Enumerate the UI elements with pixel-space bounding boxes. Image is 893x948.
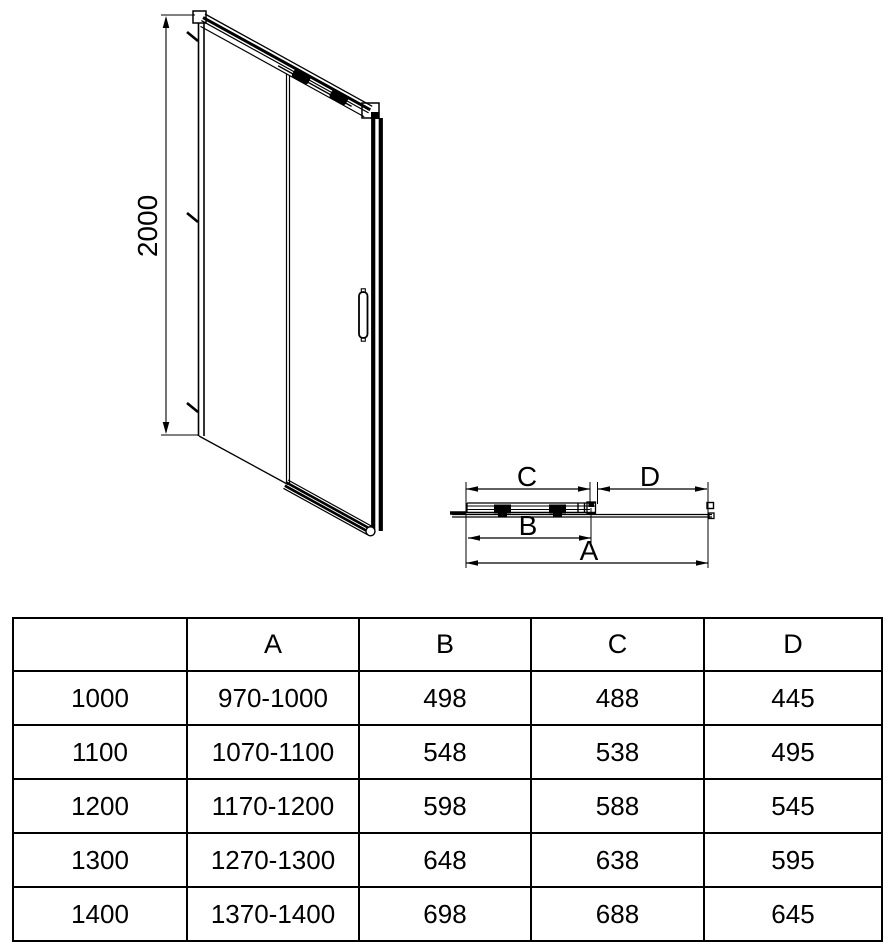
dimension-a: A (466, 535, 708, 566)
dim-c-cell: 688 (531, 887, 704, 941)
panel-divider (287, 74, 290, 483)
dim-c-cell: 538 (531, 725, 704, 779)
dim-a-cell: 1270-1300 (187, 833, 359, 887)
dimension-d: D (598, 461, 707, 492)
plan-roller-right (549, 505, 566, 514)
plan-view: C D (450, 461, 714, 568)
height-dimension: 2000 (132, 15, 198, 435)
dim-a-text: A (580, 535, 599, 566)
dim-b-cell: 598 (359, 779, 531, 833)
table-row: 1200 1170-1200 598 588 545 (13, 779, 882, 833)
wall-bracket-middle (187, 213, 198, 222)
arrow-up (163, 16, 170, 28)
dimension-table: A B C D 1000 970-1000 498 488 445 1100 1… (12, 617, 883, 942)
dim-d-cell: 495 (704, 725, 882, 779)
col-header-c: C (531, 618, 704, 671)
wall-bracket-bottom (187, 403, 198, 412)
dim-c-cell: 488 (531, 671, 704, 725)
size-cell: 1300 (13, 833, 187, 887)
table-row: 1100 1070-1100 548 538 495 (13, 725, 882, 779)
dim-c-cell: 588 (531, 779, 704, 833)
dimension-c: C (466, 461, 590, 492)
col-header-d: D (704, 618, 882, 671)
dim-b-cell: 698 (359, 887, 531, 941)
dim-d-cell: 445 (704, 671, 882, 725)
wall-bracket-top (187, 32, 198, 41)
technical-drawing: 2000 (0, 0, 893, 600)
dim-d-cell: 545 (704, 779, 882, 833)
col-header-size (13, 618, 187, 671)
left-wall-profile (187, 11, 206, 436)
glass-bottom-edge (199, 436, 288, 485)
dim-a-cell: 1370-1400 (187, 887, 359, 941)
dim-b-cell: 548 (359, 725, 531, 779)
col-header-b: B (359, 618, 531, 671)
top-rail (199, 14, 372, 118)
table-row: 1400 1370-1400 698 688 645 (13, 887, 882, 941)
dim-c-text: C (517, 461, 537, 492)
table-header-row: A B C D (13, 618, 882, 671)
dim-b-text: B (519, 510, 538, 541)
size-cell: 1000 (13, 671, 187, 725)
dim-b-cell: 648 (359, 833, 531, 887)
plan-door-assembly (450, 502, 714, 519)
dim-d-cell: 645 (704, 887, 882, 941)
table-row: 1300 1270-1300 648 638 595 (13, 833, 882, 887)
plan-roller-left (494, 505, 511, 514)
dim-a-cell: 1170-1200 (187, 779, 359, 833)
right-post (373, 116, 381, 531)
bottom-track (283, 480, 376, 537)
dim-b-cell: 498 (359, 671, 531, 725)
front-view: 2000 (132, 11, 381, 537)
dim-d-text: D (640, 461, 660, 492)
arrow-down (163, 422, 170, 434)
size-cell: 1100 (13, 725, 187, 779)
shower-door-spec-sheet: 2000 (0, 0, 893, 948)
dim-a-cell: 1070-1100 (187, 725, 359, 779)
dim-d-cell: 595 (704, 833, 882, 887)
size-cell: 1400 (13, 887, 187, 941)
table-row: 1000 970-1000 498 488 445 (13, 671, 882, 725)
right-wall-cap (709, 513, 714, 519)
col-header-a: A (187, 618, 359, 671)
dim-c-cell: 638 (531, 833, 704, 887)
height-dim-text: 2000 (132, 195, 163, 257)
door-handle (359, 289, 368, 341)
dim-a-cell: 970-1000 (187, 671, 359, 725)
size-cell: 1200 (13, 779, 187, 833)
